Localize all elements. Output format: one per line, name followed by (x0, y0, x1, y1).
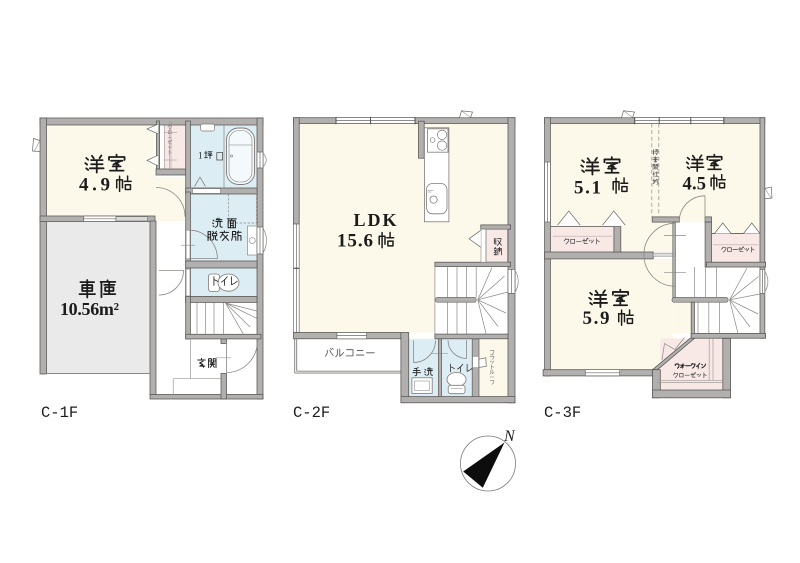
svg-text:C-1F: C-1F (41, 404, 78, 422)
svg-text:4.9: 4.9 (79, 175, 110, 196)
svg-text:5.9: 5.9 (583, 308, 610, 329)
svg-text:N: N (503, 428, 516, 445)
svg-text:1: 1 (198, 151, 203, 161)
svg-text:10.56m²: 10.56m² (60, 299, 119, 319)
svg-text:C-3F: C-3F (544, 404, 581, 422)
svg-text:C-2F: C-2F (293, 404, 330, 422)
svg-text:LDK: LDK (354, 210, 399, 230)
svg-text:5.1: 5.1 (574, 178, 601, 199)
svg-text:4.5: 4.5 (683, 175, 707, 195)
svg-text:15.6: 15.6 (337, 231, 373, 252)
